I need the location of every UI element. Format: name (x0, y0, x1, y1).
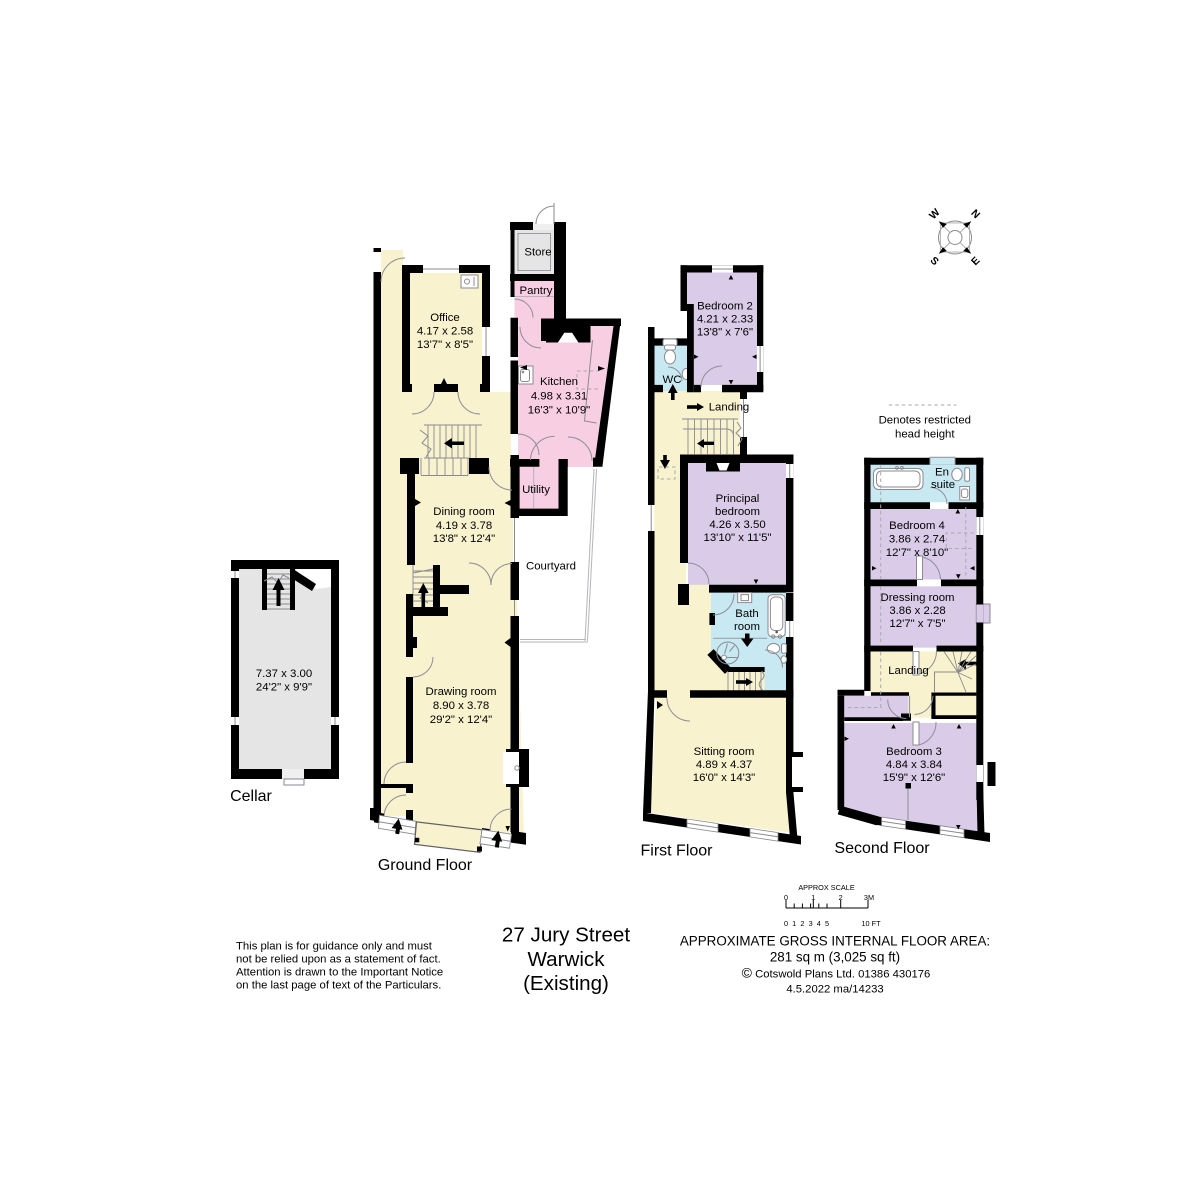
svg-text:Sitting room: Sitting room (694, 746, 755, 758)
svg-text:First Floor: First Floor (641, 843, 714, 860)
svg-text:Landing: Landing (709, 402, 750, 414)
svg-text:Second Floor: Second Floor (834, 840, 930, 857)
svg-text:4: 4 (817, 919, 821, 928)
svg-text:Pantry: Pantry (520, 285, 553, 297)
svg-text:WC: WC (663, 374, 682, 386)
svg-text:16'0" x 14'3": 16'0" x 14'3" (693, 772, 755, 784)
svg-text:Bedroom 2: Bedroom 2 (697, 301, 753, 313)
svg-text:Utility: Utility (522, 484, 550, 496)
svg-text:4.84 x 3.84: 4.84 x 3.84 (886, 759, 942, 771)
svg-text:29'2" x 12'4": 29'2" x 12'4" (430, 714, 492, 726)
svg-text:on the last page of text of th: on the last page of text of the Particul… (236, 980, 441, 992)
svg-text:Kitchen: Kitchen (540, 376, 578, 388)
svg-text:13'8" x 12'4": 13'8" x 12'4" (433, 533, 495, 545)
svg-text:3.86 x 2.28: 3.86 x 2.28 (889, 605, 945, 617)
svg-text:not be relied upon as a statem: not be relied upon as a statement of fac… (236, 954, 441, 966)
svg-text:4.21 x 2.33: 4.21 x 2.33 (697, 314, 753, 326)
svg-text:13'10" x 11'5": 13'10" x 11'5" (704, 532, 772, 544)
svg-text:Attention is drawn to the Impo: Attention is drawn to the Important Noti… (236, 967, 443, 979)
svg-text:4.98 x 3.31: 4.98 x 3.31 (531, 391, 587, 403)
svg-text:10 FT: 10 FT (861, 919, 881, 928)
svg-text:24'2" x 9'9": 24'2" x 9'9" (256, 682, 312, 694)
svg-text:7.37 x 3.00: 7.37 x 3.00 (256, 668, 312, 680)
svg-text:Store: Store (524, 247, 551, 259)
svg-text:Dressing room: Dressing room (880, 592, 954, 604)
svg-text:4.5.2022 ma/14233: 4.5.2022 ma/14233 (786, 984, 883, 996)
svg-text:suite: suite (931, 479, 955, 491)
svg-text:1: 1 (792, 919, 796, 928)
svg-text:8.90 x 3.78: 8.90 x 3.78 (433, 700, 489, 712)
svg-text:APPROXIMATE GROSS INTERNAL FLO: APPROXIMATE GROSS INTERNAL FLOOR AREA: (680, 934, 990, 949)
svg-text:3M: 3M (864, 893, 874, 902)
svg-text:5: 5 (825, 919, 829, 928)
svg-text:3: 3 (809, 919, 813, 928)
svg-text:Office: Office (430, 312, 460, 324)
svg-text:bedroom: bedroom (715, 506, 760, 518)
svg-text:13'8" x 7'6": 13'8" x 7'6" (697, 327, 753, 339)
svg-text:Bedroom 3: Bedroom 3 (886, 746, 942, 758)
svg-text:Landing: Landing (888, 665, 929, 677)
svg-text:Ground Floor: Ground Floor (378, 857, 473, 874)
svg-text:(Existing): (Existing) (523, 972, 609, 995)
svg-text:281 sq m (3,025 sq ft): 281 sq m (3,025 sq ft) (770, 950, 900, 965)
svg-text:room: room (734, 621, 760, 633)
svg-text:4.26 x 3.50: 4.26 x 3.50 (709, 519, 765, 531)
svg-text:0: 0 (784, 919, 788, 928)
svg-text:12'7" x 8'10": 12'7" x 8'10" (886, 547, 948, 559)
svg-text:Courtyard: Courtyard (526, 561, 576, 573)
svg-text:4.17 x 2.58: 4.17 x 2.58 (417, 326, 473, 338)
svg-text:Cellar: Cellar (230, 788, 272, 805)
svg-text:head height: head height (895, 428, 955, 440)
svg-text:Dining room: Dining room (433, 506, 494, 518)
svg-text:Principal: Principal (716, 493, 760, 505)
svg-text:4.89 x 4.37: 4.89 x 4.37 (696, 759, 752, 771)
svg-text:4.19 x 3.78: 4.19 x 3.78 (436, 520, 492, 532)
svg-text:APPROX SCALE: APPROX SCALE (798, 883, 855, 892)
svg-text:12'7" x 7'5": 12'7" x 7'5" (889, 618, 945, 630)
svg-text:16'3" x 10'9": 16'3" x 10'9" (528, 405, 590, 417)
svg-text:En: En (935, 466, 949, 478)
svg-text:15'9" x 12'6": 15'9" x 12'6" (883, 772, 945, 784)
svg-text:2: 2 (800, 919, 804, 928)
svg-text:Bath: Bath (735, 608, 758, 620)
svg-text:This plan is for guidance only: This plan is for guidance only and must (236, 941, 433, 953)
svg-text:Bedroom 4: Bedroom 4 (889, 520, 945, 532)
svg-text:Drawing room: Drawing room (426, 686, 497, 698)
svg-text:27 Jury Street: 27 Jury Street (502, 924, 630, 947)
svg-text:13'7" x 8'5": 13'7" x 8'5" (417, 339, 473, 351)
svg-text:3.86 x 2.74: 3.86 x 2.74 (889, 534, 945, 546)
svg-text:Warwick: Warwick (527, 948, 605, 971)
svg-text:Denotes restricted: Denotes restricted (879, 415, 971, 427)
